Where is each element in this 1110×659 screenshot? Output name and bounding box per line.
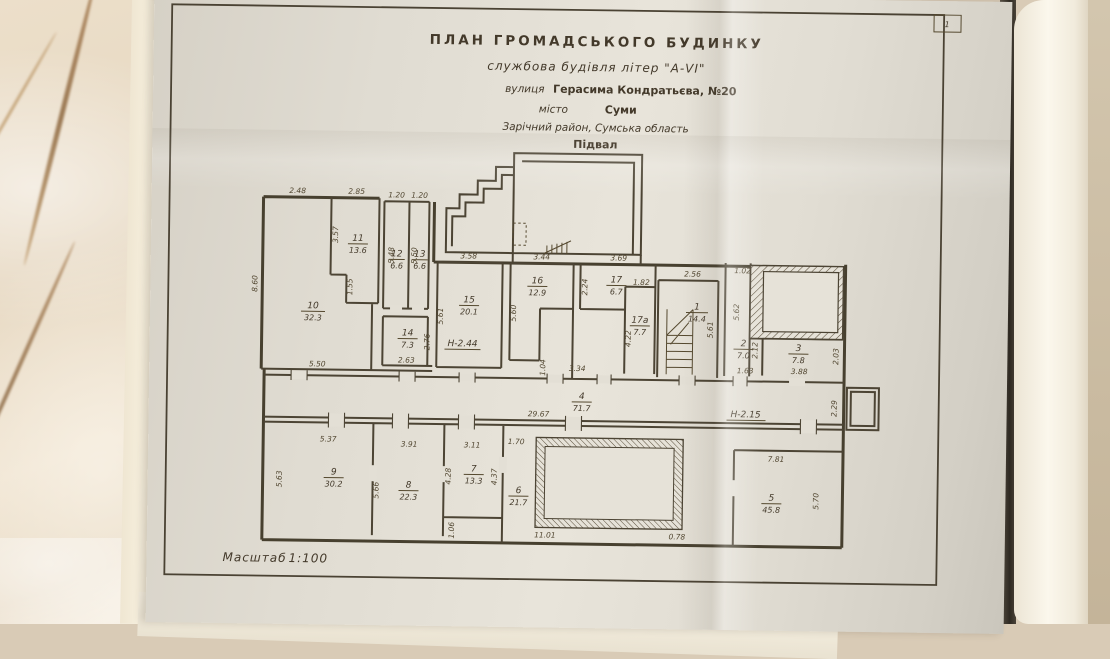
dim-label: 1.20 bbox=[411, 191, 428, 200]
room-number: 1 bbox=[694, 303, 700, 313]
room-area: 13.6 bbox=[349, 246, 367, 255]
dim-label: 5.62 bbox=[732, 304, 741, 321]
dim-label: 4.37 bbox=[490, 468, 499, 485]
courtyard-and-steps bbox=[446, 152, 642, 255]
dim-label: 5.63 bbox=[275, 470, 284, 487]
room-number: 17 bbox=[611, 275, 623, 285]
dim-label: 0.78 bbox=[668, 532, 685, 541]
dim-label: 1.20 bbox=[388, 190, 405, 199]
exterior-shaft bbox=[846, 388, 879, 430]
dim-label: 5.70 bbox=[811, 493, 820, 510]
dim-label: 2.24 bbox=[580, 278, 589, 295]
height-note-corridor: Н-2.15 bbox=[730, 410, 760, 420]
room-number: 5 bbox=[768, 494, 774, 504]
room-area: 7.0 bbox=[737, 351, 750, 360]
marble-vein bbox=[22, 0, 99, 266]
floor-plan-document: 1 ПЛАН ГРОМАДСЬКОГО БУДИНКУ службова буд… bbox=[146, 0, 1013, 634]
dim-label: 2.12 bbox=[750, 342, 759, 359]
dim-label: 1.82 bbox=[633, 278, 650, 287]
dim-label: 4.28 bbox=[444, 468, 453, 485]
scale-value: 1:100 bbox=[288, 551, 328, 566]
room-area: 71.7 bbox=[573, 404, 592, 413]
room-number: 3 bbox=[796, 344, 802, 354]
room-area: 22.3 bbox=[399, 493, 417, 502]
room-number: 7 bbox=[471, 465, 477, 475]
dim-label: 5.61 bbox=[706, 321, 715, 338]
dim-label: 1.70 bbox=[508, 437, 525, 446]
room-number: 15 bbox=[463, 295, 475, 305]
dim-label: 2.76 bbox=[422, 333, 431, 350]
dim-label: 3.58 bbox=[460, 251, 477, 260]
dim-label: 11.01 bbox=[534, 530, 556, 539]
height-note-basement: Н-2.44 bbox=[447, 339, 477, 349]
dim-label: 3.69 bbox=[610, 253, 627, 262]
dim-label: 5.61 bbox=[436, 308, 445, 325]
dim-label: 2.63 bbox=[398, 355, 415, 364]
floor-plan-drawing: 1 ПЛАН ГРОМАДСЬКОГО БУДИНКУ службова буд… bbox=[146, 0, 1013, 634]
title-line1: ПЛАН ГРОМАДСЬКОГО БУДИНКУ bbox=[430, 32, 764, 53]
dim-label: 2.85 bbox=[348, 187, 365, 196]
surface-right bbox=[1088, 0, 1110, 624]
dim-label: 2.29 bbox=[830, 400, 839, 417]
dim-label: 2.48 bbox=[289, 186, 306, 195]
title-block: ПЛАН ГРОМАДСЬКОГО БУДИНКУ службова будів… bbox=[428, 32, 764, 154]
room-area: 12.9 bbox=[528, 288, 546, 297]
dim-label: 3.88 bbox=[791, 367, 808, 376]
dim-label: 3.57 bbox=[331, 226, 340, 243]
room-number: 8 bbox=[406, 481, 412, 491]
dim-label: 8.60 bbox=[250, 275, 259, 292]
city-label: місто bbox=[539, 103, 568, 115]
room-area: 14.4 bbox=[688, 315, 706, 324]
dashed-shaft bbox=[513, 223, 526, 245]
page-number: 1 bbox=[944, 20, 949, 29]
dim-label: 1.63 bbox=[737, 366, 754, 375]
dim-label: 4.22 bbox=[624, 330, 633, 347]
street-label: вулиця bbox=[505, 83, 545, 96]
dim-label: 5.66 bbox=[371, 482, 380, 499]
room-area: 20.1 bbox=[460, 307, 478, 316]
room-area: 7.8 bbox=[792, 356, 805, 365]
dim-label: 3.44 bbox=[533, 252, 550, 261]
dim-label: 29.67 bbox=[528, 409, 550, 418]
dim-label: 3.91 bbox=[401, 440, 418, 449]
district-line: Зарічний район, Сумська область bbox=[502, 121, 689, 136]
dim-label: 5.60 bbox=[509, 304, 518, 321]
room-area: 45.8 bbox=[762, 506, 780, 515]
dim-label: 1.04 bbox=[538, 359, 547, 376]
dim-label: 2.03 bbox=[831, 348, 840, 365]
dim-label: 5.50 bbox=[309, 359, 326, 368]
walls bbox=[259, 150, 882, 549]
room-area: 21.7 bbox=[509, 498, 528, 507]
room-number: 2 bbox=[741, 339, 747, 349]
dim-label: 3.34 bbox=[569, 364, 586, 373]
room-number: 16 bbox=[532, 276, 544, 286]
room-number: 4 bbox=[579, 392, 585, 402]
dim-label: 7.81 bbox=[768, 455, 785, 464]
room-area: 13.3 bbox=[465, 476, 483, 485]
dim-label: 5.50 bbox=[410, 247, 419, 264]
room-area: 32.3 bbox=[304, 313, 322, 322]
dim-label: 1.06 bbox=[447, 522, 456, 539]
street-value: Герасима Кондратьєва, №20 bbox=[553, 83, 737, 99]
dim-label: 1.55 bbox=[345, 278, 354, 295]
room-area: 30.2 bbox=[325, 479, 343, 488]
room-number: 11 bbox=[352, 234, 364, 244]
room-area: 7.7 bbox=[633, 328, 647, 337]
dim-label: 3.11 bbox=[464, 440, 481, 449]
room-area: 6.7 bbox=[610, 287, 624, 296]
paper-sheet-right bbox=[1014, 0, 1090, 624]
hatched-zone-void bbox=[763, 272, 839, 333]
dim-label: 5.37 bbox=[320, 434, 337, 443]
dim-label: 1.02 bbox=[734, 266, 751, 275]
room-number: 6 bbox=[516, 486, 522, 496]
room-number: 10 bbox=[307, 301, 319, 311]
hatched-platform-void bbox=[544, 447, 674, 521]
scale-label: Масштаб bbox=[222, 550, 286, 565]
room-number: 14 bbox=[402, 329, 414, 339]
room-area: 7.3 bbox=[401, 341, 414, 350]
marble-vein bbox=[0, 240, 77, 479]
room-number: 17а bbox=[631, 316, 648, 326]
title-line2: службова будівля літер "А-VI" bbox=[487, 59, 705, 76]
dim-label: 2.56 bbox=[684, 269, 701, 278]
city-value: Суми bbox=[605, 103, 637, 116]
floor-label: Підвал bbox=[573, 138, 617, 152]
room-number: 9 bbox=[331, 468, 337, 478]
dim-label: 5.48 bbox=[387, 247, 396, 264]
